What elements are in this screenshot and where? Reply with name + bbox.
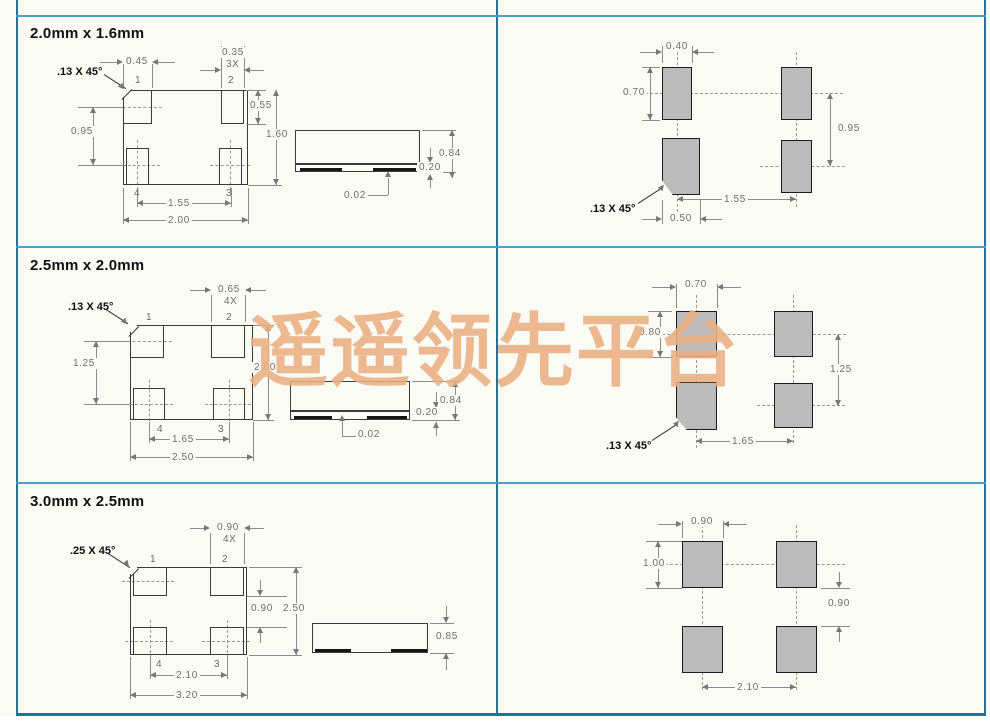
arrow [692,49,698,55]
land-pad-1 [682,541,723,588]
datasheet-page: 2.0mm x 1.6mm 1 2 4 3 0.45 0.35 3X .13 X… [0,0,990,727]
dim-pad-width: 0.35 [220,47,246,58]
ext-line [642,120,660,121]
arrow [123,217,129,223]
land-pad-2 [774,311,813,357]
arrow [293,567,299,573]
package-pad-3 [213,388,245,420]
ext-line [253,422,254,461]
dim-body-width: 2.50 [170,452,196,463]
side-view-body [295,130,420,172]
leader-line [388,178,389,195]
dim-pad-width: 0.90 [215,522,241,533]
land-pad-4-chamfered [662,138,700,195]
ext-line [229,422,230,443]
arrow [130,454,136,460]
dim-line [96,341,97,404]
ext-line [245,295,246,322]
ext-line [821,588,850,589]
package-pad-4 [126,148,149,185]
dim-line [100,62,117,63]
dim-land-pad-height: 1.00 [641,558,667,569]
pin-label-2: 2 [226,312,232,323]
dim-col-pitch: 1.55 [166,198,192,209]
arrow [835,400,841,406]
dim-line [200,70,215,71]
land-pad-3 [776,626,817,673]
ext-line [247,657,248,699]
arrow [656,49,662,55]
row-divider-1 [16,246,986,248]
arrow [152,59,158,65]
arrow [647,67,653,73]
ext-line [152,64,153,88]
dim-line [250,528,264,529]
dim-row-pitch: 0.95 [69,126,95,137]
dim-col-pitch: 1.65 [170,434,196,445]
ext-line [227,657,228,679]
arrow [137,200,143,206]
dim-side-height: 0.84 [437,148,463,159]
section-title-3: 3.0mm x 2.5mm [30,493,144,510]
arrow [723,521,729,527]
dim-side-standoff: 0.02 [356,429,382,440]
pin-label-2: 2 [222,554,228,565]
arrow [204,525,210,531]
ext-line [249,655,302,656]
arrow [700,216,706,222]
arrow [257,590,263,596]
land-pad-4 [682,626,723,673]
chamfer-note: .13 X 45° [57,66,102,78]
dim-land-pad-width: 0.70 [683,279,709,290]
pin-label-3: 3 [218,424,224,435]
ext-line [412,420,460,421]
dim-line [830,93,831,166]
ext-line [211,295,212,322]
arrow [223,436,229,442]
arrow [702,684,708,690]
dim-pad-width: 0.65 [216,284,242,295]
package-pad-3 [219,148,242,185]
arrow [670,284,676,290]
table-border-left [16,0,18,716]
table-border-bottom [16,713,986,716]
dim-line [698,52,714,53]
side-view-foot [294,416,332,419]
arrow [836,582,842,588]
ext-line [662,46,663,63]
ext-line [248,185,282,186]
dim-body-height: 2.50 [281,603,307,614]
ext-line [646,541,682,542]
arrow [273,90,279,96]
ext-line [84,404,131,405]
side-view-foot [315,649,351,652]
arrow [443,653,449,659]
arrow [90,159,96,165]
side-view-foot [373,168,416,171]
ext-line [682,521,683,538]
dim-body-width: 3.20 [174,690,200,701]
arrow [696,438,702,444]
arrow [242,217,248,223]
arrow [827,93,833,99]
side-view-line [290,410,410,412]
pin-label-1: 1 [135,75,141,86]
land-pad-3 [774,383,813,428]
ext-line [210,533,211,564]
arrow [677,196,683,202]
pin-label-4: 4 [134,188,140,199]
dim-line [251,290,266,291]
arrow [647,114,653,120]
dim-line [190,290,205,291]
arrow [244,67,250,73]
arrow [827,160,833,166]
ext-line [662,200,663,224]
pin-label-4: 4 [156,659,162,670]
land-chamfer-note: .13 X 45° [606,440,651,452]
side-view-foot [300,168,342,171]
package-pad-3 [210,627,244,655]
arrow [245,287,251,293]
arrow [244,525,250,531]
dim-line [190,528,204,529]
arrow [257,627,263,633]
dim-side-standoff: 0.02 [342,190,368,201]
arrow [656,216,662,222]
arrow [443,617,449,623]
package-pad-2 [210,567,244,596]
ext-line [646,588,682,589]
dim-side-base: 0.20 [414,407,440,418]
leader-line [368,195,388,196]
arrow [205,287,211,293]
dim-land-row-pitch: 0.95 [836,123,862,134]
arrow [449,172,455,178]
dim-pad-count: 3X [224,59,241,70]
arrow [247,454,253,460]
arrow [790,684,796,690]
dim-line [652,287,670,288]
arrow [273,179,279,185]
dim-side-base: 0.20 [417,162,443,173]
dim-side-height: 0.84 [438,395,464,406]
dim-col-pitch: 2.10 [174,670,200,681]
land-pad-1 [662,67,692,120]
dim-pad-count: 4X [221,534,238,545]
arrow [215,67,221,73]
arrow [787,438,793,444]
ext-line [244,533,245,564]
arrow [225,200,231,206]
arrow [449,130,455,136]
dim-land-col-pitch: 1.65 [730,436,756,447]
dim-land-pad-height: 0.70 [621,87,647,98]
ext-line [676,284,677,308]
table-border-top [16,15,986,17]
side-view-foot [367,416,407,419]
ext-line [248,188,249,224]
dim-pad-height: 0.55 [248,100,274,111]
dim-line [729,524,747,525]
dim-line [706,219,722,220]
dim-land-col-pitch: 1.55 [722,194,748,205]
arrow [265,414,271,420]
pin-label-4: 4 [157,424,163,435]
land-pad-3 [781,140,812,193]
dim-land-col-pitch: 2.10 [735,682,761,693]
dim-land-pad1-width: 0.50 [668,213,694,224]
section-title-2: 2.5mm x 2.0mm [30,257,144,274]
ext-line [246,124,266,125]
ext-line [430,653,454,654]
table-border-right [984,0,986,716]
arrow [655,582,661,588]
arrow [717,284,723,290]
arrow [385,171,391,177]
dim-pad1-width: 0.45 [124,56,150,67]
dim-land-row-pitch: 1.25 [828,364,854,375]
arrow [130,692,136,698]
pin-label-3: 3 [226,188,232,199]
arrow [433,422,439,428]
pin-label-3: 3 [214,659,220,670]
dim-land-pad-width: 0.40 [664,41,690,52]
dim-land-pad-width: 0.90 [689,516,715,527]
land-chamfer-note: .13 X 45° [590,203,635,215]
section-title-1: 2.0mm x 1.6mm [30,25,144,42]
dim-line [158,62,175,63]
ext-line [253,420,274,421]
arrow [90,107,96,113]
arrow [93,398,99,404]
leader-line [652,424,678,442]
arrow [835,334,841,340]
ext-line [247,596,287,597]
arrow [241,692,247,698]
land-pad-2 [776,541,817,588]
arrow [117,59,123,65]
leader-line [342,421,343,437]
dim-body-height: 1.60 [264,129,290,140]
ext-line [78,165,126,166]
package-pad-1 [133,567,167,596]
leader-line [342,436,356,437]
dim-side-height: 0.85 [434,631,460,642]
arrow [655,541,661,547]
page-margin [0,716,990,727]
arrow [93,341,99,347]
dim-line [658,524,676,525]
ext-line [247,627,287,628]
ext-line [430,623,454,624]
side-view-foot [391,649,427,652]
pin-label-1: 1 [150,554,156,565]
arrow [255,90,261,96]
arrow [221,672,227,678]
arrow [339,415,345,421]
arrow [427,174,433,180]
package-pad-4 [133,627,167,655]
dim-line [640,52,656,53]
arrow [150,672,156,678]
land-pad-2 [781,67,812,120]
dim-land-row-gap: 0.90 [826,598,852,609]
ext-line [84,341,128,342]
pin-label-1: 1 [146,312,152,323]
arrow [452,414,458,420]
dim-pad-count: 4X [222,296,239,307]
package-pad-2 [211,325,245,358]
dim-line [250,70,264,71]
pin-label-2: 2 [228,75,234,86]
dim-body-width: 2.00 [166,215,192,226]
arrow [149,436,155,442]
arrow [255,118,261,124]
arrow [676,521,682,527]
ext-line [78,107,123,108]
chamfer-note: .25 X 45° [70,545,115,557]
watermark: 遥遥领先平台 [248,312,740,392]
arrow [836,626,842,632]
dim-row-pitch: 1.25 [71,358,97,369]
row-divider-2 [16,482,986,484]
dim-line [650,67,651,120]
package-pad-4 [133,388,165,420]
arrow [293,649,299,655]
dim-line [723,287,741,288]
table-border-center [496,0,498,716]
chamfer-note: .13 X 45° [68,301,113,313]
dim-row-gap: 0.90 [249,603,275,614]
package-pad-2 [221,90,244,124]
side-view-line [295,163,420,165]
arrow [790,196,796,202]
